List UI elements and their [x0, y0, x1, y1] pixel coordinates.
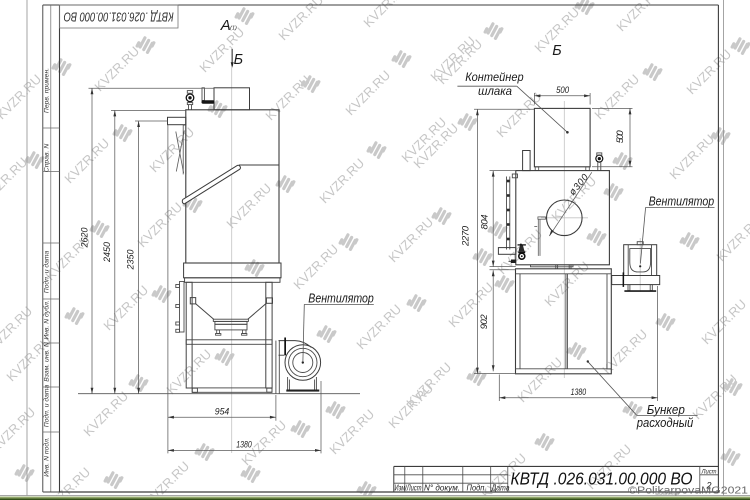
svg-text:804: 804 [480, 215, 491, 230]
svg-text:шлака: шлака [478, 86, 512, 98]
svg-text:Дата: Дата [491, 484, 510, 493]
svg-text:1380: 1380 [571, 387, 587, 398]
svg-text:Б: Б [552, 43, 561, 59]
svg-text:1380: 1380 [236, 439, 252, 450]
svg-text:Подп. и дата: Подп. и дата [43, 251, 51, 294]
svg-text:500: 500 [556, 85, 570, 96]
svg-text:N° докум.: N° докум. [424, 484, 460, 493]
svg-text:©PolikarpovaMG2021: ©PolikarpovaMG2021 [628, 486, 748, 497]
svg-text:Выполнено: Выполнено [655, 491, 679, 496]
svg-text:Лист: Лист [701, 468, 717, 475]
svg-text:2450: 2450 [102, 241, 113, 263]
svg-text:902: 902 [479, 314, 490, 330]
svg-text:954: 954 [215, 407, 230, 418]
svg-text:Вентилятор: Вентилятор [308, 291, 374, 306]
svg-text:Инв. N дубл.: Инв. N дубл. [43, 300, 51, 339]
svg-text:Вентилятор: Вентилятор [649, 193, 715, 208]
svg-text:Справ. N: Справ. N [44, 144, 51, 173]
svg-text:Инв. N подл.: Инв. N подл. [43, 437, 51, 477]
svg-text:Взам. инв. N: Взам. инв. N [44, 342, 51, 382]
svg-text:(1): (1) [230, 26, 237, 32]
svg-text:расходный: расходный [636, 416, 693, 430]
svg-text:Бункер: Бункер [647, 403, 685, 417]
svg-text:Подп.: Подп. [467, 484, 487, 493]
svg-text:Контейнер: Контейнер [465, 72, 524, 84]
svg-text:Изм/Лист: Изм/Лист [395, 484, 422, 493]
svg-text:2620: 2620 [80, 227, 91, 249]
svg-text:КВТД .026.031.00.000 ВО: КВТД .026.031.00.000 ВО [63, 10, 173, 24]
svg-text:500: 500 [615, 130, 626, 144]
svg-text:А: А [220, 17, 231, 34]
svg-text:Перв. примен.: Перв. примен. [44, 68, 51, 113]
svg-text:2350: 2350 [126, 249, 137, 271]
svg-text:2270: 2270 [461, 225, 472, 247]
svg-text:Подп. и дата: Подп. и дата [43, 385, 51, 428]
svg-text:Б: Б [234, 52, 243, 68]
